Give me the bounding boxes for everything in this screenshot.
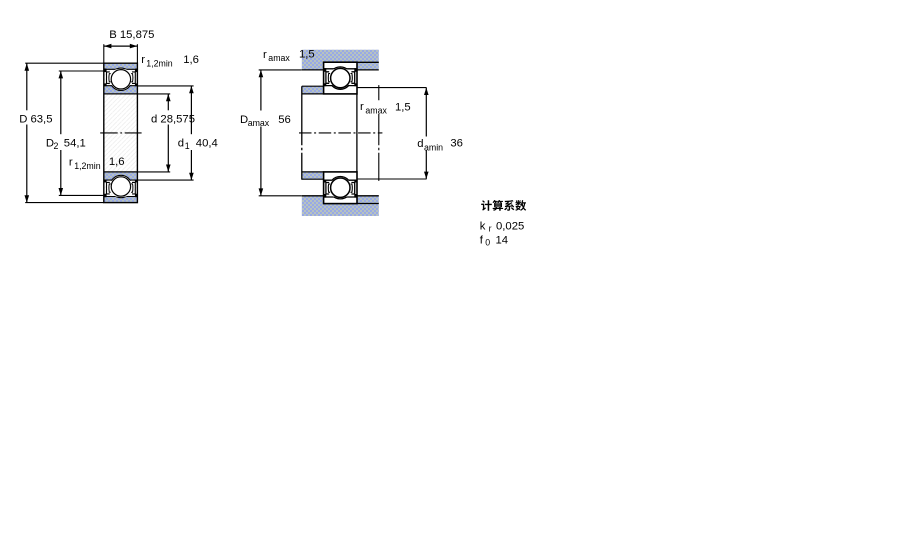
svg-text:r: r (263, 49, 267, 61)
svg-text:amax: amax (268, 53, 290, 63)
svg-text:amax: amax (365, 106, 387, 116)
svg-text:d 28,575: d 28,575 (151, 113, 195, 125)
svg-text:D 63,5: D 63,5 (19, 113, 52, 125)
svg-text:1,6: 1,6 (183, 54, 199, 66)
svg-text:36: 36 (450, 138, 463, 150)
svg-text:amax: amax (248, 118, 270, 128)
svg-text:2: 2 (54, 141, 59, 151)
svg-text:1: 1 (185, 141, 190, 151)
svg-text:40,4: 40,4 (196, 137, 218, 149)
svg-text:r: r (360, 101, 364, 113)
svg-text:0: 0 (485, 238, 490, 248)
svg-text:1,5: 1,5 (299, 49, 315, 61)
svg-text:1,2min: 1,2min (74, 161, 101, 171)
svg-text:1,2min: 1,2min (146, 59, 173, 69)
svg-text:r: r (141, 54, 145, 66)
svg-text:B 15,875: B 15,875 (109, 29, 154, 41)
svg-text:1,6: 1,6 (109, 156, 125, 168)
svg-text:r: r (69, 157, 73, 169)
svg-text:14: 14 (496, 234, 509, 246)
svg-text:r: r (489, 224, 492, 234)
svg-text:1,5: 1,5 (395, 101, 411, 113)
svg-text:k: k (480, 221, 486, 233)
svg-text:d: d (417, 138, 423, 150)
svg-text:0,025: 0,025 (496, 221, 524, 233)
svg-text:56: 56 (278, 114, 291, 126)
svg-text:amin: amin (424, 142, 443, 152)
svg-text:54,1: 54,1 (64, 137, 86, 149)
svg-text:d: d (178, 137, 184, 149)
